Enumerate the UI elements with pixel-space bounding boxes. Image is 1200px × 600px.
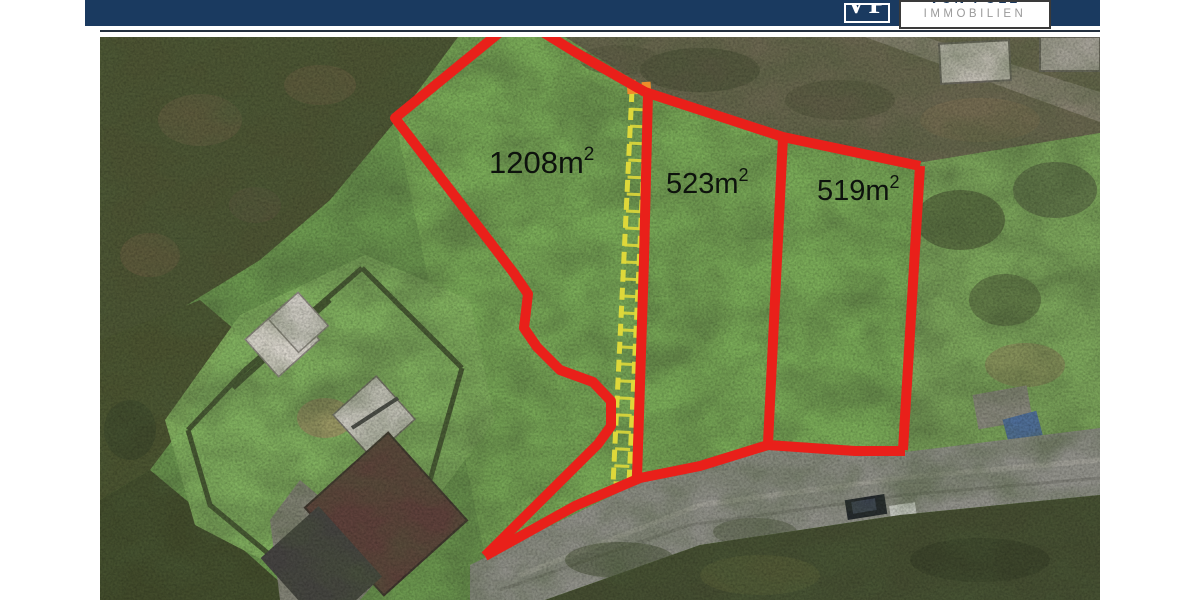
texture-grain bbox=[100, 37, 1100, 600]
brand-name-box: VON POLL IMMOBILIEN bbox=[899, 0, 1051, 29]
plot-519-label: 519m2 bbox=[817, 172, 900, 207]
brand-logo: VP VON POLL IMMOBILIEN bbox=[841, 0, 1051, 29]
plot-1208-label: 1208m2 bbox=[489, 144, 594, 180]
brand-monogram-badge: VP bbox=[841, 0, 893, 26]
header-separator-line bbox=[100, 30, 1100, 32]
brand-word-bottom: IMMOBILIEN bbox=[924, 8, 1027, 20]
brand-word-top: VON POLL bbox=[930, 0, 1020, 6]
brand-monogram: VP bbox=[846, 0, 889, 23]
aerial-photo: 1208m2 523m2 519m2 bbox=[100, 37, 1100, 600]
plot-523-label: 523m2 bbox=[666, 165, 749, 200]
